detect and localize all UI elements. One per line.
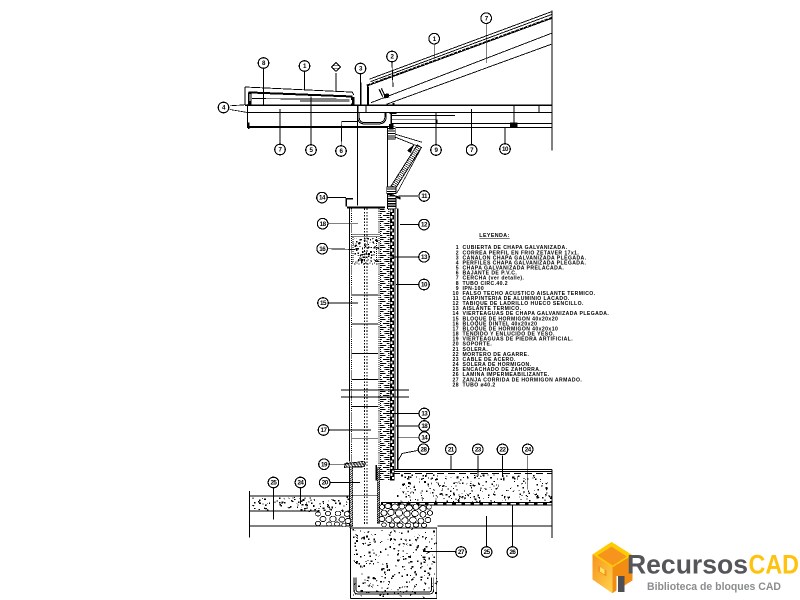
svg-text:16: 16 <box>319 246 326 253</box>
svg-text:TUBO ø40.2: TUBO ø40.2 <box>463 382 496 388</box>
svg-text:24: 24 <box>525 447 532 454</box>
svg-text:LEYENDA:: LEYENDA: <box>479 233 509 239</box>
svg-text:CAD: CAD <box>749 550 800 580</box>
svg-text:24: 24 <box>297 480 304 487</box>
svg-text:28: 28 <box>452 382 459 388</box>
svg-text:25: 25 <box>270 480 277 487</box>
svg-text:20: 20 <box>322 480 329 487</box>
svg-text:Recursos: Recursos <box>627 550 748 580</box>
svg-text:26: 26 <box>509 549 516 556</box>
svg-text:Biblioteca de bloques CAD: Biblioteca de bloques CAD <box>647 581 781 593</box>
